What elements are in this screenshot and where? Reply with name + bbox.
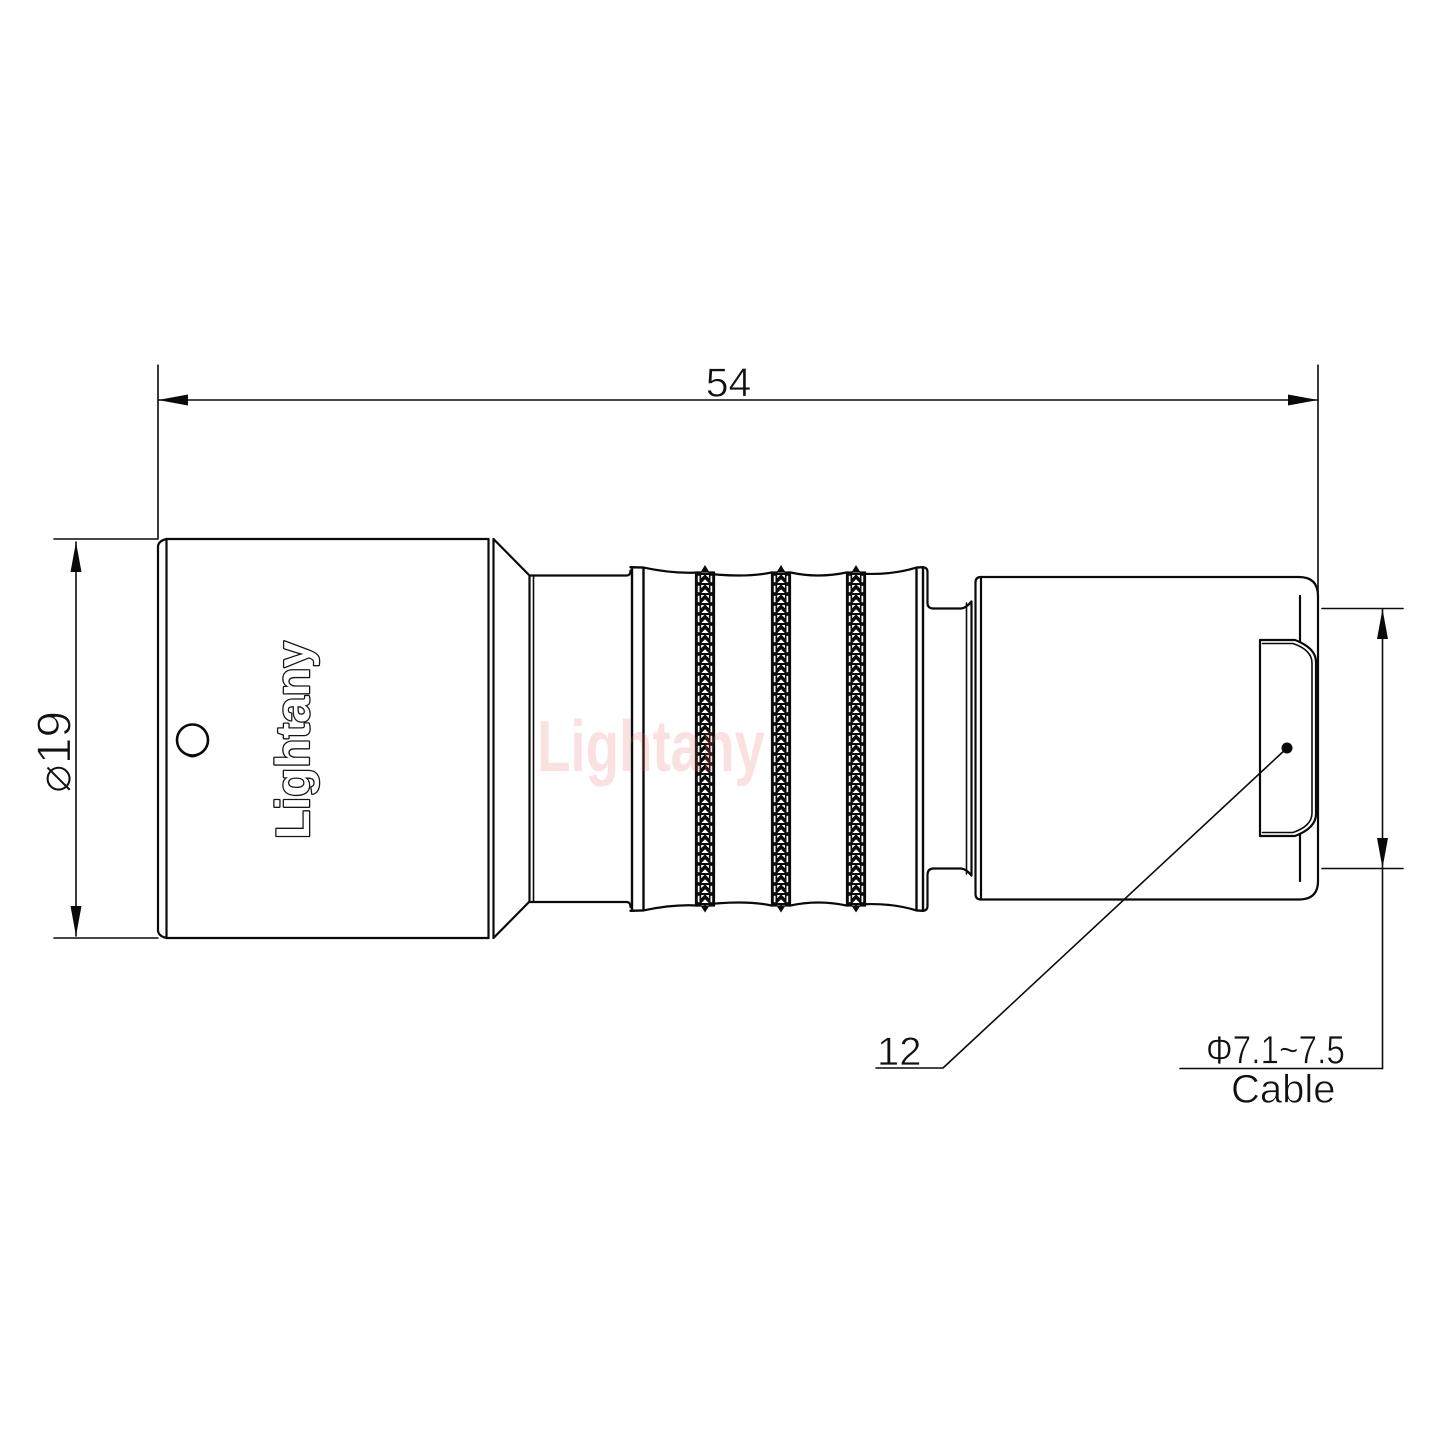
svg-text:Cable: Cable <box>1231 1068 1336 1112</box>
svg-text:12: 12 <box>877 1030 922 1074</box>
svg-text:Φ7.1~7.5: Φ7.1~7.5 <box>1206 1028 1345 1073</box>
svg-text:54: 54 <box>706 360 752 406</box>
svg-text:⌀19: ⌀19 <box>29 711 82 793</box>
svg-text:Lightany: Lightany <box>267 640 320 838</box>
svg-text:Lightany: Lightany <box>537 706 765 787</box>
